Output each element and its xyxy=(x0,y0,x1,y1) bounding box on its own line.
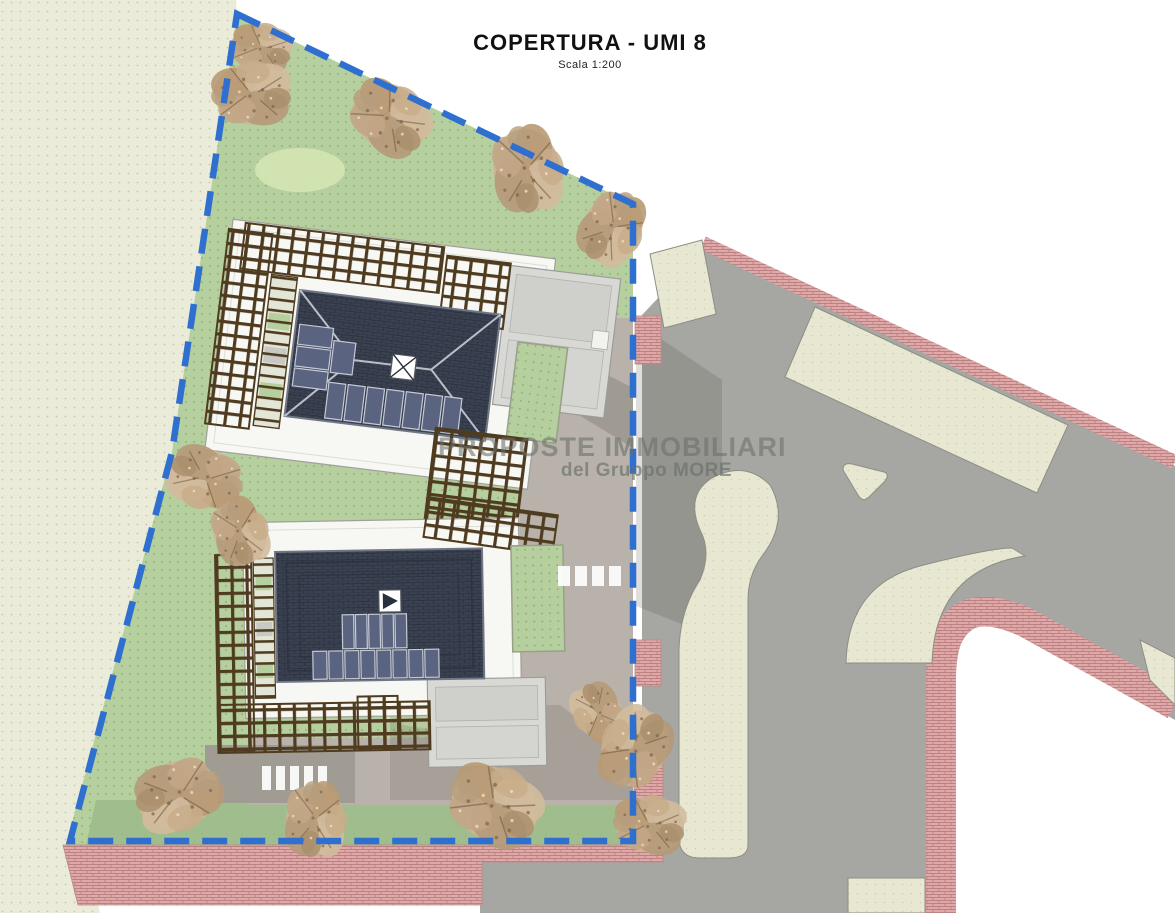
building-bottom-ladder-bed xyxy=(253,558,275,698)
planting-bed-top xyxy=(506,342,567,443)
site-plan-drawing xyxy=(0,0,1175,913)
roof-plan-canvas: COPERTURA - UMI 8 Scala 1:200 PROPOSTE I… xyxy=(0,0,1175,913)
island-rect-bottom xyxy=(848,878,925,913)
building-bottom-skylight xyxy=(379,590,401,612)
building-bottom-annex xyxy=(427,677,547,767)
building-top-skylight xyxy=(390,354,417,381)
planting-bed-bottom xyxy=(511,545,565,652)
